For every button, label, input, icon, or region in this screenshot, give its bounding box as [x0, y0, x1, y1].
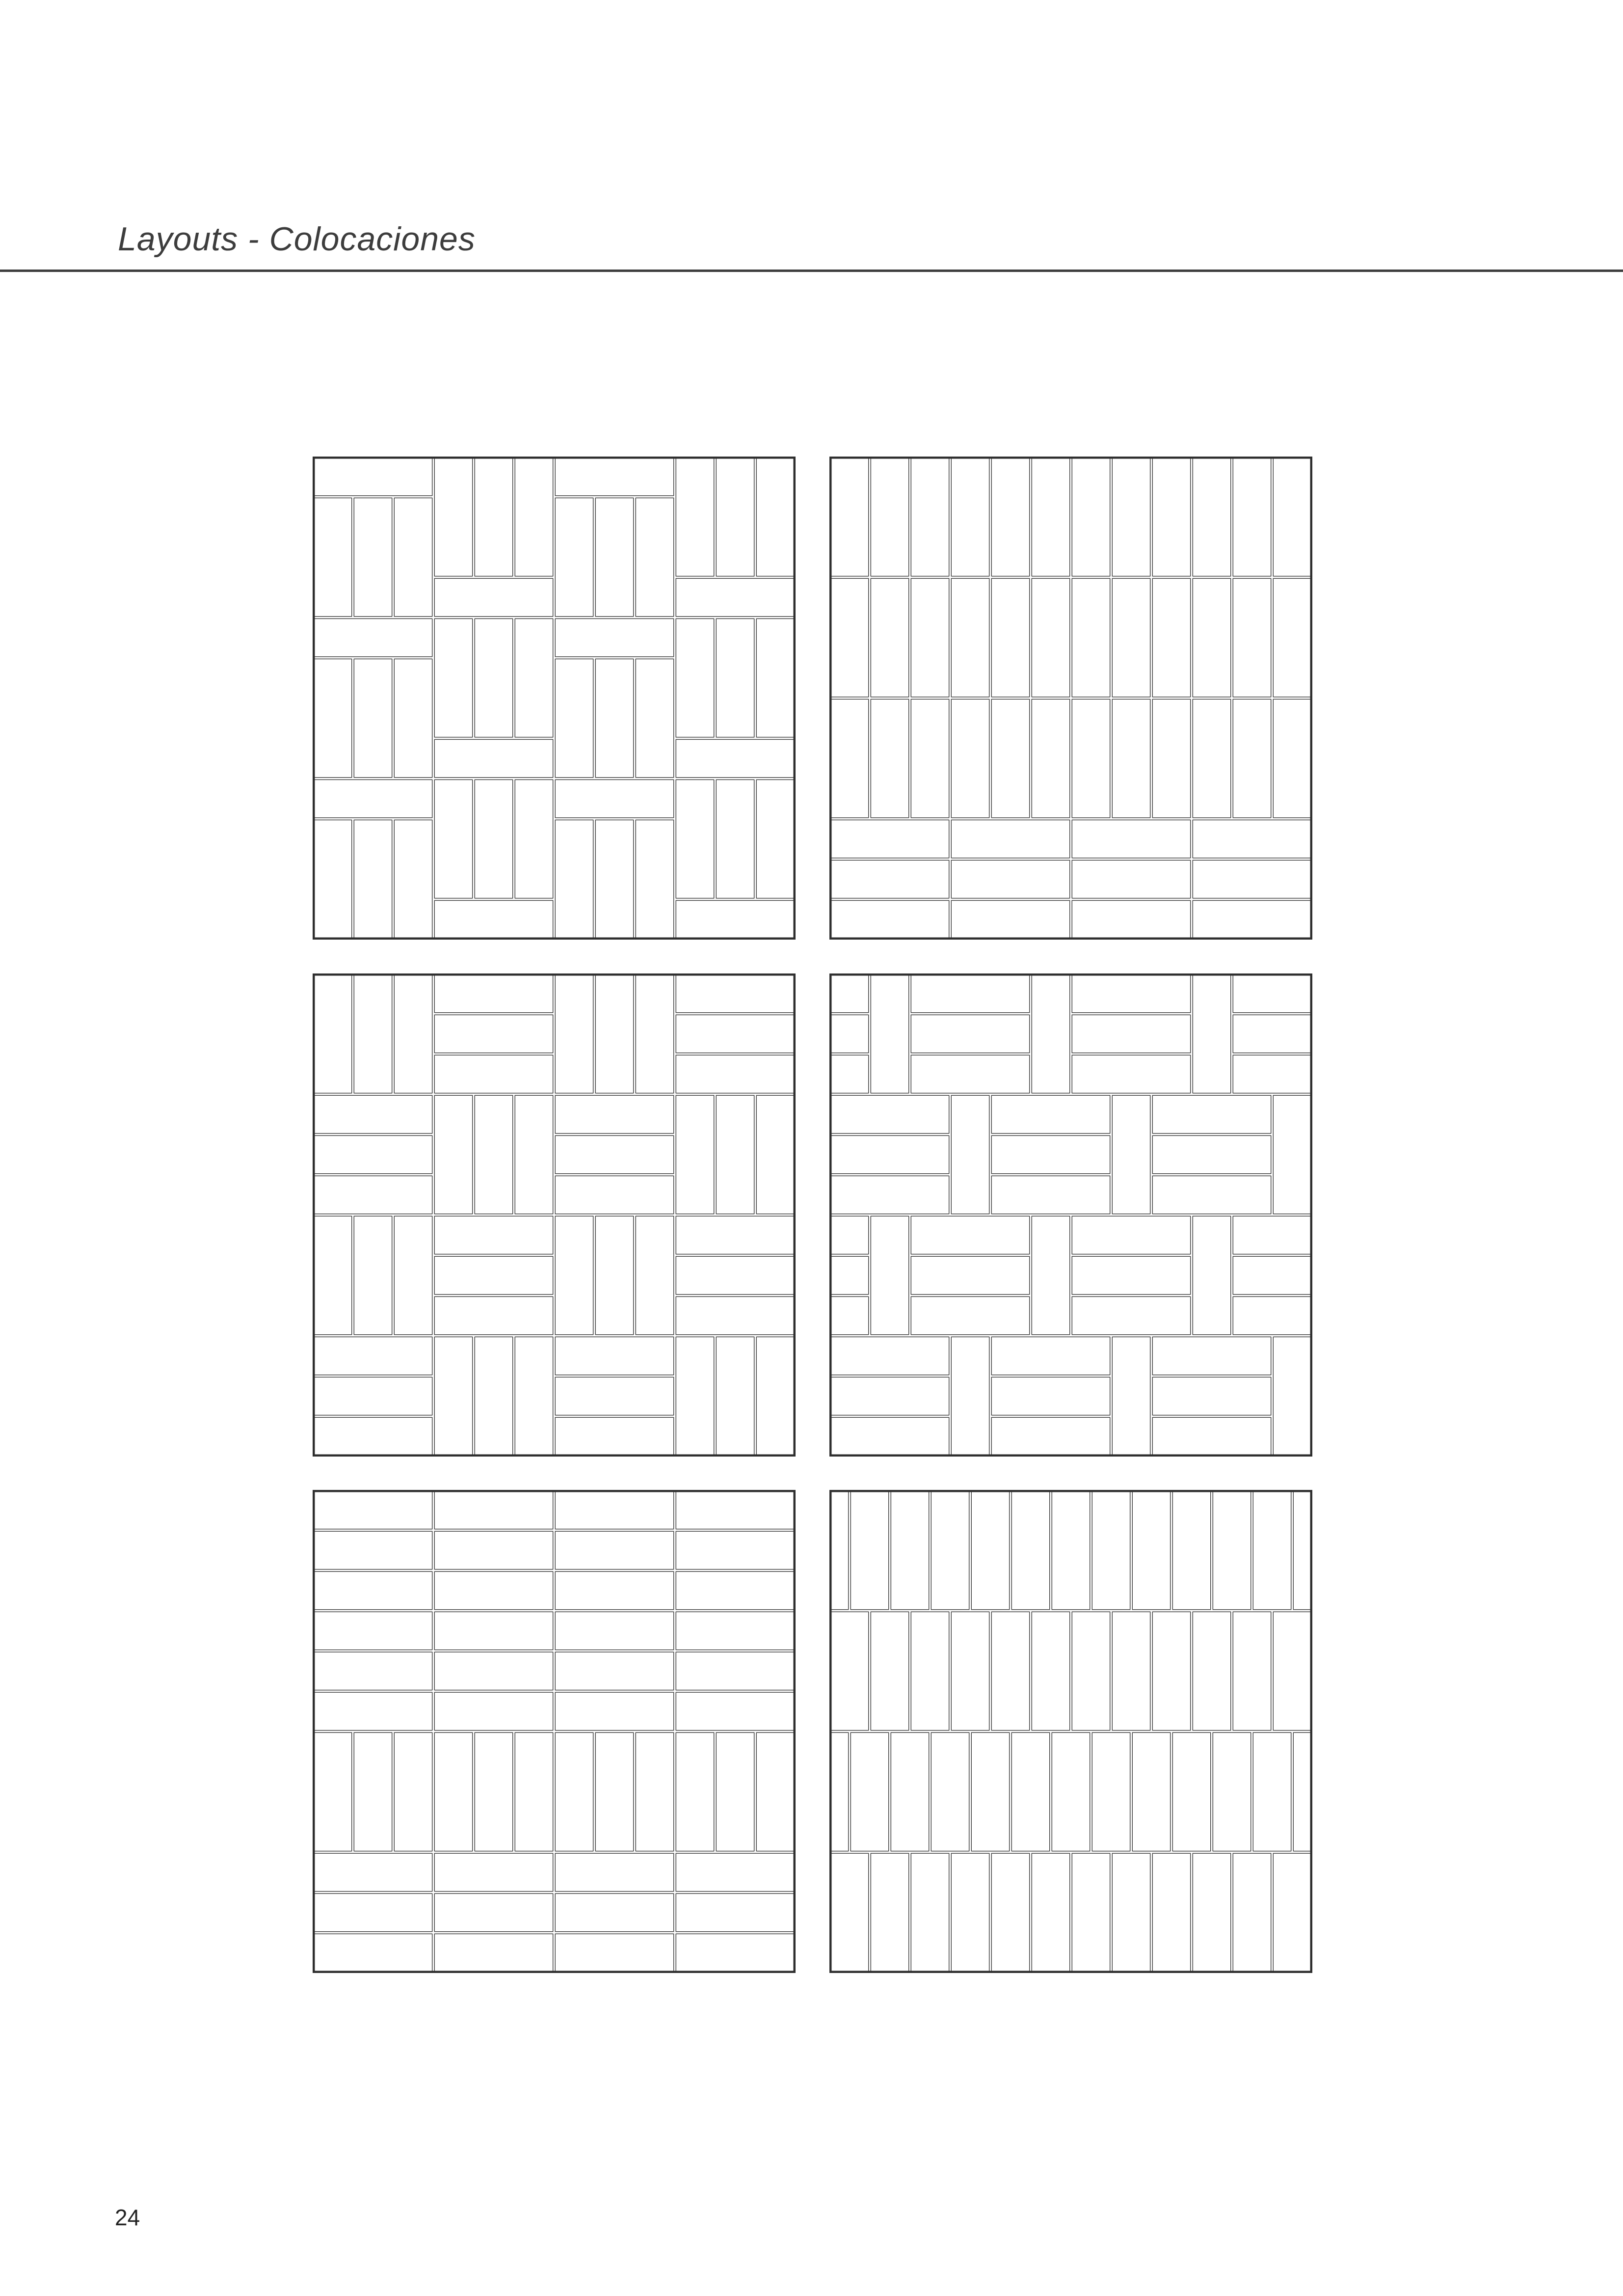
pattern-horizontal-courses-with-soldier-band [313, 1490, 796, 1973]
panel-1-drawing [313, 457, 796, 940]
pattern-basketweave [313, 973, 796, 1457]
pattern-horizontal-triplets-with-vertical-breaks [829, 973, 1312, 1457]
header-rule [0, 270, 1623, 272]
panel-3-drawing [313, 973, 796, 1457]
page-number: 24 [115, 2204, 140, 2231]
panel-6-drawing [829, 1490, 1312, 1973]
pattern-vertical-triplets-horizontal-caps [313, 457, 796, 940]
panel-2-drawing [829, 457, 1312, 940]
pattern-offset-vertical-running-bond [829, 1490, 1312, 1973]
panel-5-drawing [313, 1490, 796, 1973]
catalog-page: Layouts - Colocaciones 24 [0, 0, 1623, 2296]
pattern-stacked-vertical-with-base-courses [829, 457, 1312, 940]
panel-4-drawing [829, 973, 1312, 1457]
page-title: Layouts - Colocaciones [118, 220, 476, 258]
